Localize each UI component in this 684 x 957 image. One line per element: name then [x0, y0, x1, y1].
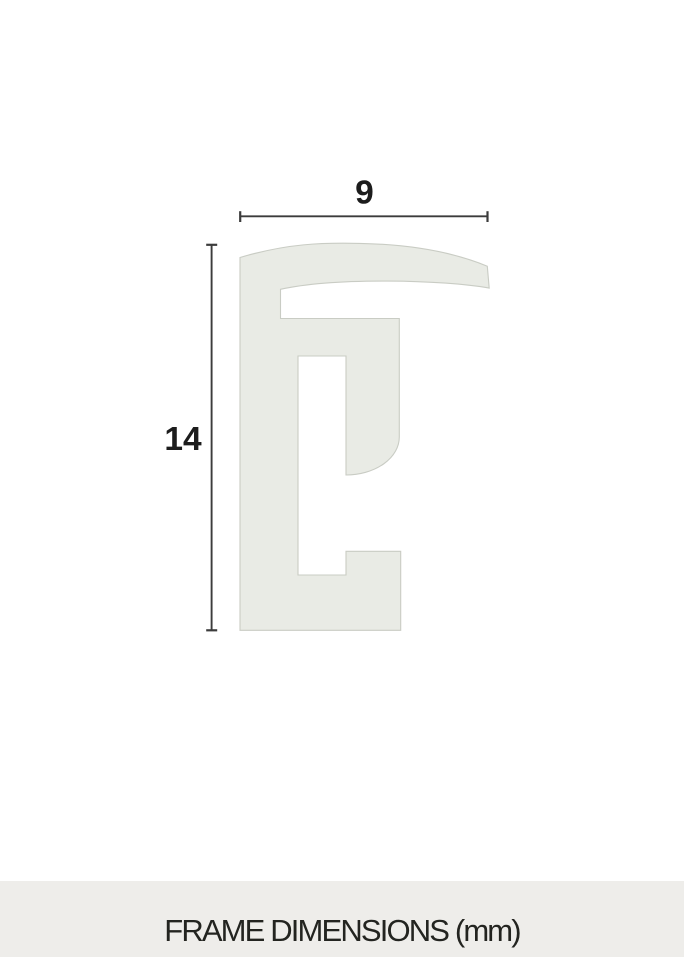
svg-text:14: 14: [164, 421, 202, 458]
svg-text:9: 9: [355, 175, 374, 212]
